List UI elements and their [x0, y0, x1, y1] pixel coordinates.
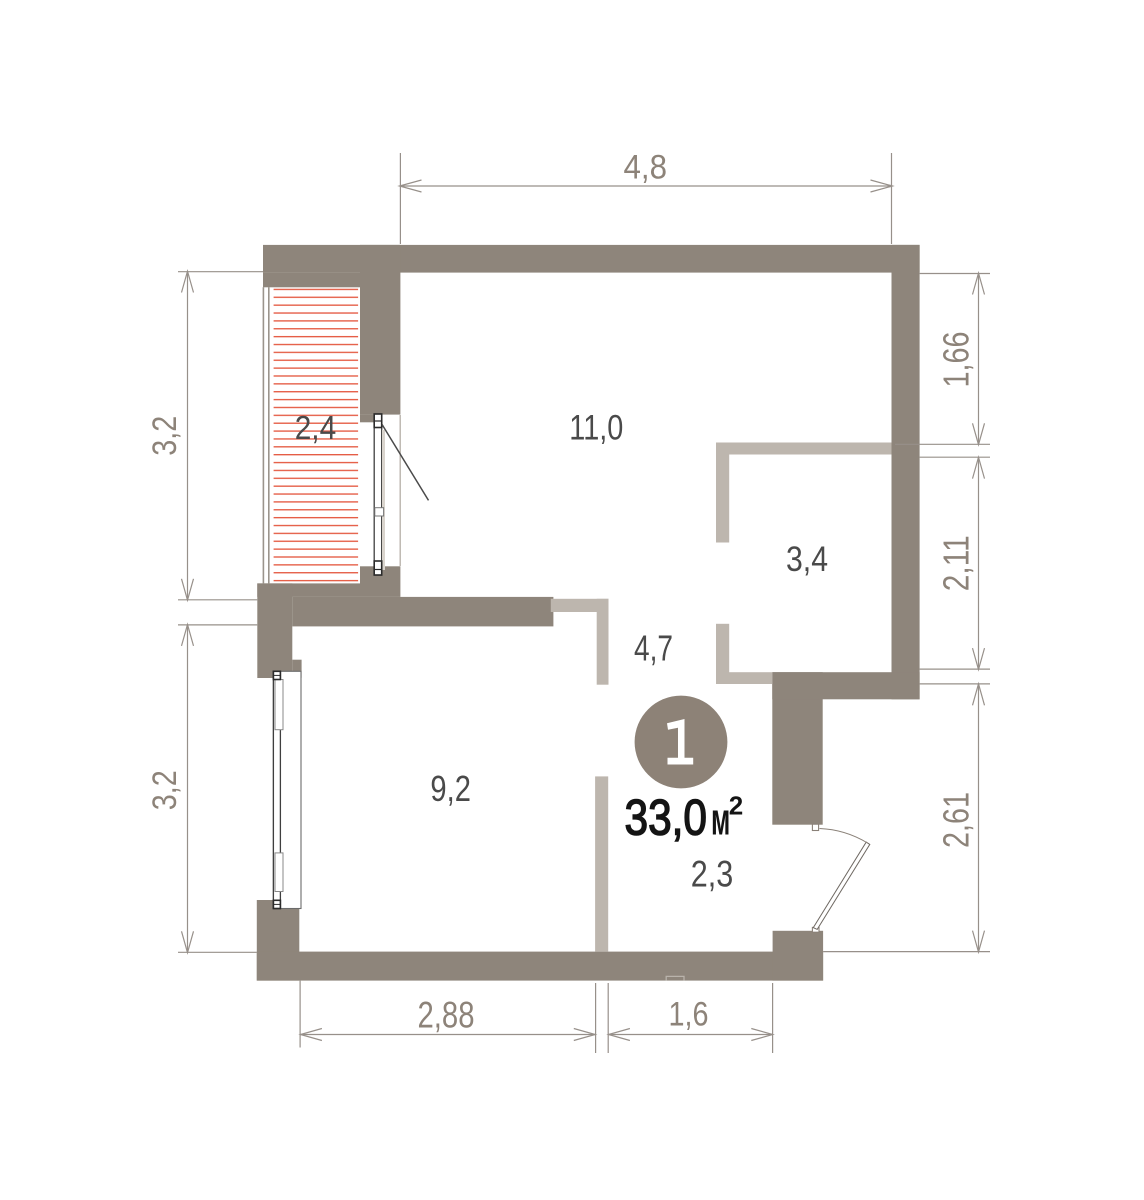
svg-text:1,66: 1,66 [936, 332, 977, 388]
svg-text:2,4: 2,4 [295, 409, 337, 446]
svg-text:2,3: 2,3 [691, 853, 734, 894]
svg-text:2,11: 2,11 [936, 535, 977, 591]
svg-text:3,2: 3,2 [146, 416, 184, 456]
svg-text:9,2: 9,2 [430, 768, 471, 809]
svg-text:2,61: 2,61 [936, 792, 977, 848]
svg-text:1,6: 1,6 [669, 996, 709, 1034]
svg-text:11,0: 11,0 [569, 408, 623, 447]
svg-text:3,2: 3,2 [146, 770, 184, 810]
svg-text:3,4: 3,4 [786, 540, 828, 579]
svg-text:м: м [711, 794, 730, 844]
svg-text:4,8: 4,8 [624, 149, 668, 187]
svg-text:33,0: 33,0 [625, 789, 708, 845]
svg-text:4,7: 4,7 [634, 628, 673, 669]
svg-text:2: 2 [729, 791, 743, 821]
svg-text:2,88: 2,88 [418, 995, 475, 1036]
